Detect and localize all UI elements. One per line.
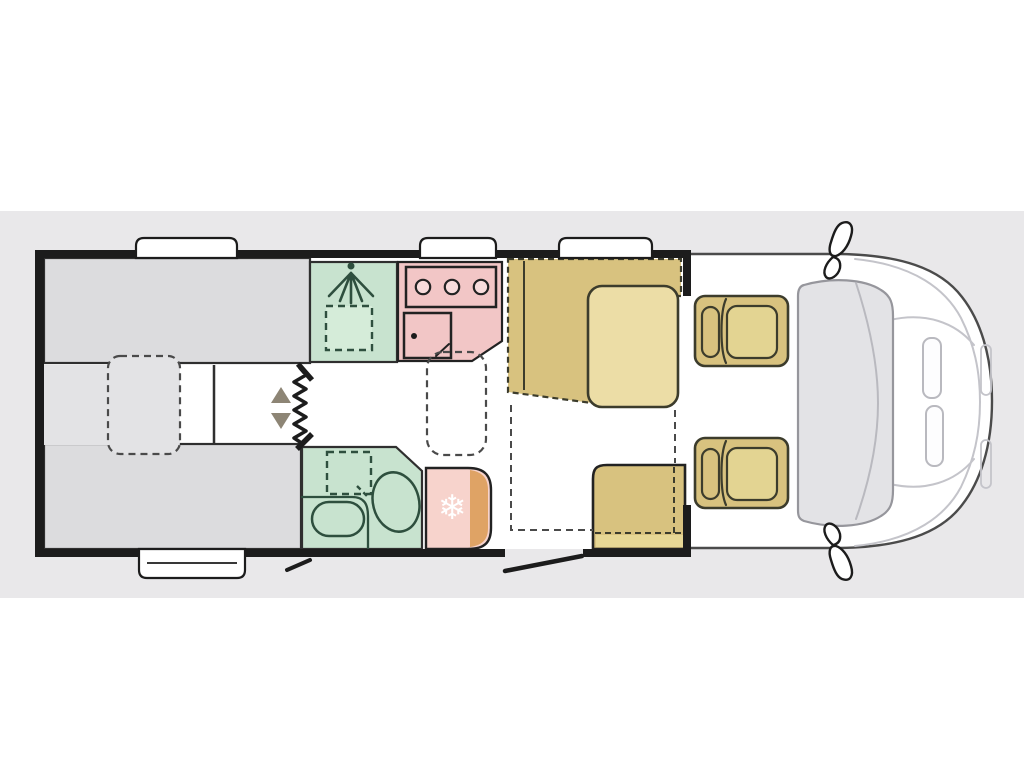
dinette-block [508, 259, 681, 407]
window-top-kitchen [420, 238, 496, 258]
shower-head-dot [348, 263, 355, 270]
rear-bed-bottom [44, 444, 301, 549]
wall-bottom-left [35, 549, 505, 557]
hob-burner [445, 280, 459, 294]
hob-burner [474, 280, 488, 294]
wall-stub-top [683, 250, 691, 296]
faucet-dot [411, 333, 417, 339]
hob-burner [416, 280, 430, 294]
window-top-dinette [559, 238, 652, 258]
cab-seat-passenger [695, 438, 788, 508]
fridge-door-edge [470, 470, 488, 547]
wall-bottom-right [583, 549, 691, 557]
dinette-table [588, 286, 678, 407]
snowflake-icon: ❄ [438, 488, 467, 528]
bathroom-block [302, 447, 426, 549]
shower-tray-dashed [326, 306, 372, 350]
bed-middle-shelf [44, 365, 110, 445]
window-top-rear [136, 238, 237, 258]
motorhome-floorplan: ❄ [0, 0, 1024, 768]
kitchen-block [398, 262, 502, 361]
forward-bench-step [596, 535, 683, 547]
headlight-right [926, 406, 943, 466]
wall-left [35, 250, 44, 557]
rear-bed-top [44, 258, 310, 363]
fridge-block: ❄ [426, 468, 491, 549]
wall-stub-bottom [683, 505, 691, 557]
cab-seat-driver [695, 296, 788, 366]
forward-bench-block [593, 465, 685, 549]
bed-filler-cushion-dashed [108, 356, 180, 454]
headlight-left [923, 338, 941, 398]
floorplan-canvas: ❄ [0, 0, 1024, 768]
